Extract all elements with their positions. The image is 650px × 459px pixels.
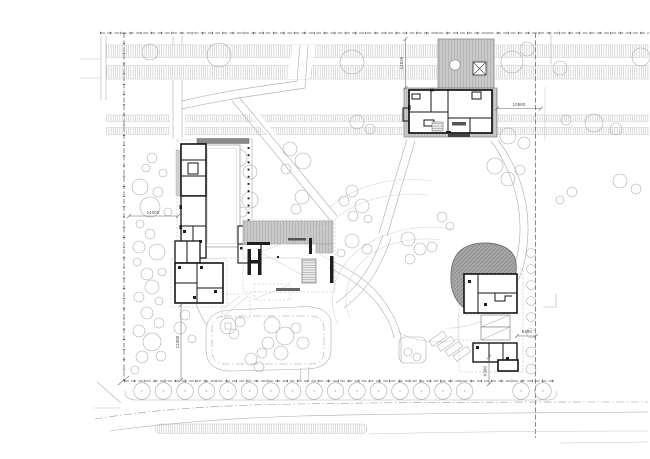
courtyard [204, 145, 240, 247]
tree [526, 347, 536, 357]
tree [134, 292, 144, 302]
outbuilding [498, 360, 518, 371]
tree [348, 211, 358, 221]
tree [262, 337, 274, 349]
street-tree-row [134, 383, 552, 400]
parking-layby [399, 337, 426, 363]
column [248, 176, 250, 178]
tree [133, 325, 145, 337]
tree-center-dot [520, 390, 521, 391]
parking-area [399, 331, 471, 363]
road-median-hatch [155, 424, 367, 434]
tree [188, 335, 196, 343]
roof-opening [473, 62, 486, 75]
tree [515, 165, 525, 175]
tree [291, 204, 301, 214]
site-plan-drawing: 14000 21000 12836 10980 5280 6300 [0, 0, 650, 459]
tree [141, 307, 153, 319]
tree-center-dot [442, 390, 443, 391]
tree [518, 137, 530, 149]
floor-plan-lower [473, 343, 517, 362]
tree [295, 153, 311, 169]
dim-label-site-west: 21000 [175, 335, 180, 348]
tree-center-dot [399, 390, 400, 391]
tree [405, 254, 415, 264]
tree [145, 229, 155, 239]
column [248, 205, 250, 207]
column [248, 161, 250, 163]
wall-bar [247, 242, 270, 245]
tree [414, 243, 426, 255]
tree [527, 297, 536, 306]
tree [487, 158, 503, 174]
column [248, 212, 250, 214]
column [248, 183, 250, 185]
column [248, 190, 250, 192]
tree [556, 196, 564, 204]
tree-center-dot [313, 390, 314, 391]
tree [295, 190, 309, 204]
tree-center-dot [163, 390, 164, 391]
tree [156, 351, 166, 361]
roof-striped-band [316, 244, 333, 253]
road-verge-hatch [106, 66, 649, 79]
tree [362, 244, 372, 254]
tree [220, 318, 236, 334]
column [248, 169, 250, 171]
tree [527, 249, 536, 258]
column [248, 147, 250, 149]
tree [526, 364, 536, 374]
building-southeast [451, 243, 523, 372]
dim-label-se-width: 5280 [522, 329, 533, 334]
tree [155, 297, 163, 305]
tree [147, 153, 157, 163]
dim-label-main-west: 14000 [147, 210, 160, 215]
tree-center-dot [206, 390, 207, 391]
tree [355, 199, 369, 213]
tree [257, 348, 267, 358]
tree [527, 265, 536, 274]
tree [145, 280, 159, 294]
tree [141, 268, 153, 280]
tree-center-dot [141, 390, 142, 391]
canopy-tree-opening [450, 60, 460, 70]
tree-center-dot [184, 390, 185, 391]
tree [143, 333, 161, 351]
roof-striped-band [243, 221, 333, 244]
courtyard-ramps [481, 315, 510, 340]
tree [613, 174, 627, 188]
tree-center-dot [249, 390, 250, 391]
tree [153, 187, 163, 197]
tree-center-dot [421, 390, 422, 391]
tree-center-dot [227, 390, 228, 391]
tree [345, 234, 359, 248]
tree [133, 241, 145, 253]
tree-center-dot [335, 390, 336, 391]
tree [243, 165, 257, 179]
tree [337, 249, 345, 257]
tree [229, 329, 239, 339]
tree [427, 242, 437, 252]
tree [136, 220, 144, 228]
dim-label-ne-width: 10980 [513, 102, 526, 107]
tree [297, 337, 309, 349]
tree [133, 258, 141, 266]
tree [164, 208, 172, 216]
tree [404, 348, 412, 356]
tree [245, 353, 257, 365]
building-main-sw-wing [171, 241, 227, 307]
tree [437, 212, 447, 222]
roof-cap [197, 139, 249, 144]
column [248, 197, 250, 199]
tree-center-dot [356, 390, 357, 391]
stair-flight [432, 122, 443, 131]
tree [180, 310, 190, 320]
tree [401, 232, 415, 246]
playground-loop [206, 307, 331, 371]
column [248, 154, 250, 156]
tree [283, 142, 297, 156]
west-wing [181, 144, 206, 196]
tree [274, 346, 288, 360]
tree [158, 268, 166, 276]
tree [142, 164, 150, 172]
tree [159, 169, 167, 177]
tree [339, 196, 349, 206]
tree [291, 323, 301, 333]
tree [131, 366, 139, 374]
tree [501, 172, 515, 186]
tree [235, 317, 245, 327]
tree [174, 322, 186, 334]
site-plan-canvas: 14000 21000 12836 10980 5280 6300 [0, 0, 650, 459]
tree-center-dot [542, 390, 543, 391]
tree [631, 184, 641, 194]
tree [149, 244, 165, 260]
tree [281, 164, 291, 174]
tree [242, 192, 258, 208]
tree [132, 179, 148, 195]
stair-flight [302, 259, 316, 283]
south-road [94, 382, 648, 443]
tree-center-dot [292, 390, 293, 391]
dim-label-ne-depth: 12836 [399, 56, 404, 69]
tree [527, 281, 536, 290]
tree [136, 351, 148, 363]
dim-label-se-depth: 6300 [483, 365, 488, 376]
tree [364, 215, 372, 223]
road-verge-hatch [106, 46, 649, 58]
tree [527, 313, 536, 322]
tree [154, 318, 164, 328]
tree [567, 187, 577, 197]
road-verge-hatch [106, 128, 649, 134]
tree [413, 353, 421, 361]
tree-center-dot [270, 390, 271, 391]
tree-center-dot [378, 390, 379, 391]
road-verge-hatch [106, 116, 649, 122]
tree-center-dot [464, 390, 465, 391]
